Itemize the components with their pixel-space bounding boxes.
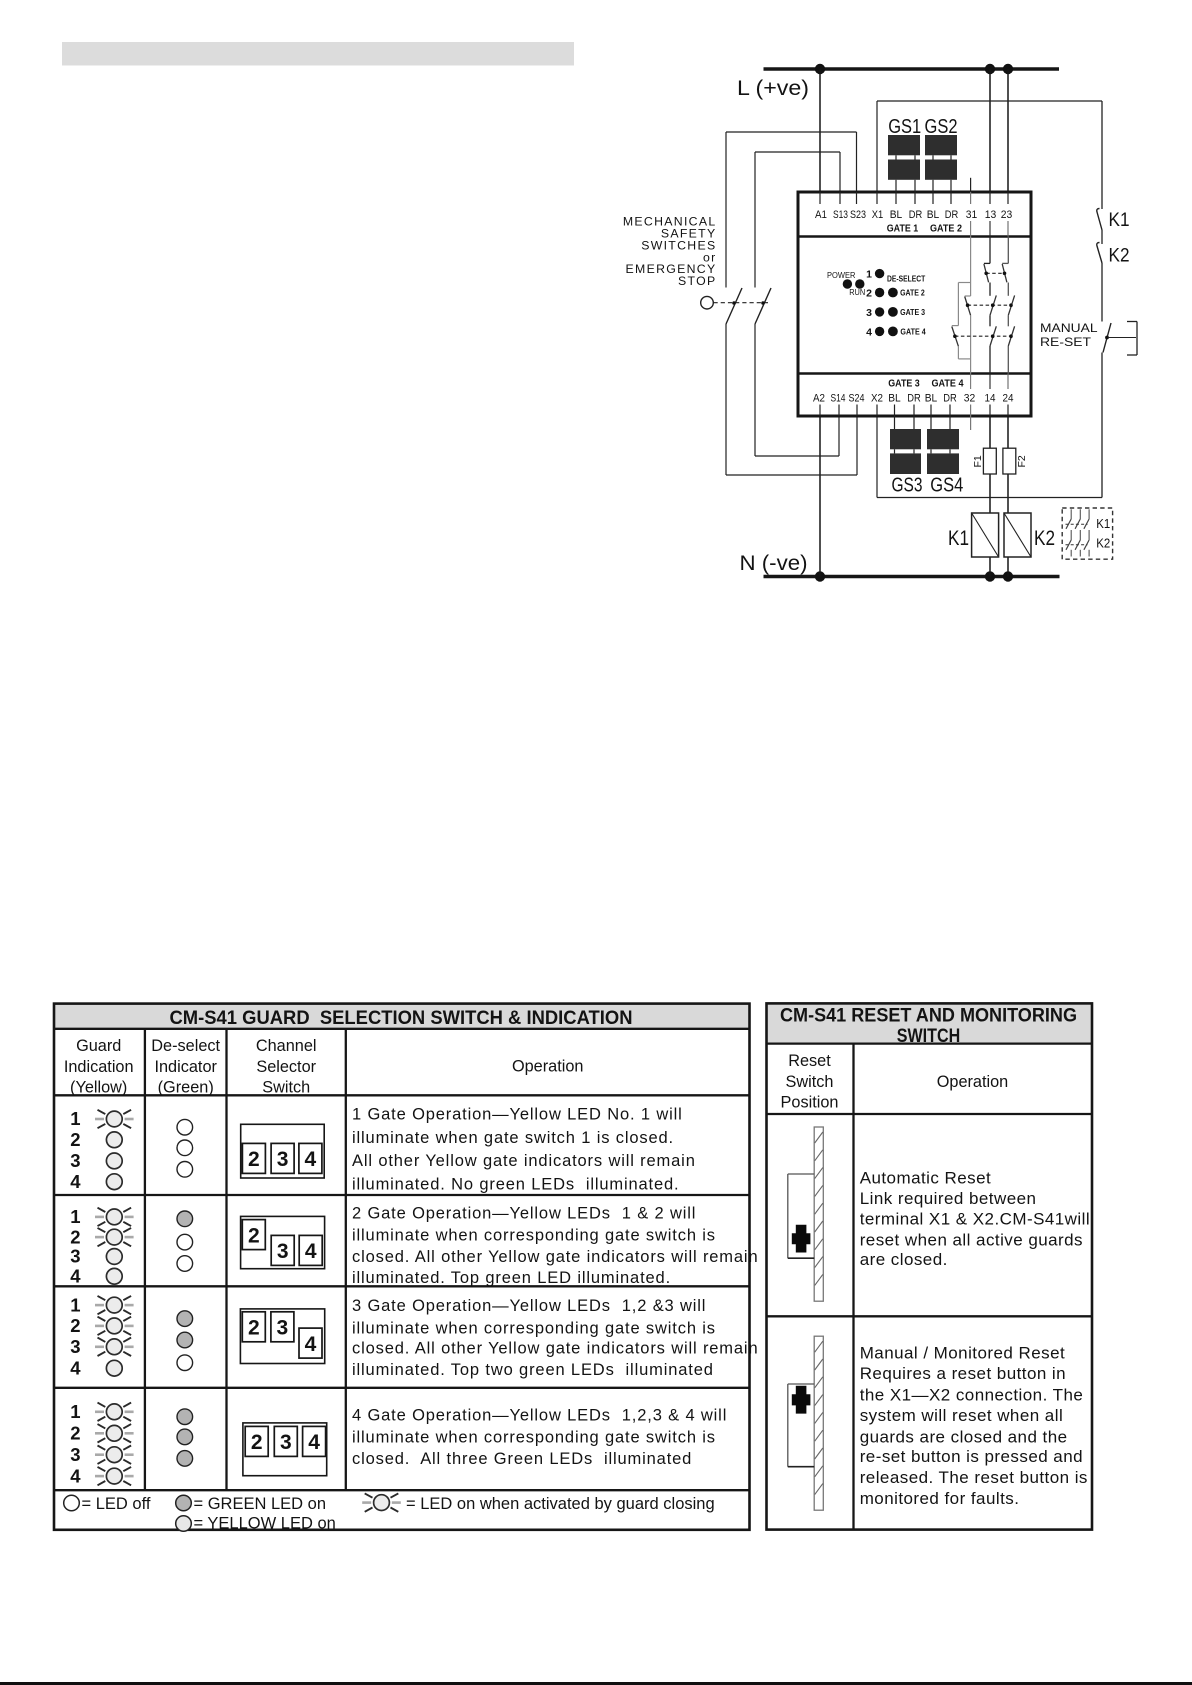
svg-text:K2: K2 — [1096, 537, 1110, 551]
svg-text:L (+ve): L (+ve) — [737, 77, 809, 100]
svg-text:A2: A2 — [813, 393, 825, 405]
svg-text:STOP: STOP — [678, 274, 716, 288]
svg-text:F2: F2 — [1016, 455, 1028, 467]
svg-text:illuminated. No green LEDs il: illuminated. No green LEDs illuminated. — [352, 1176, 679, 1194]
svg-text:S24: S24 — [849, 393, 865, 405]
svg-text:De-select: De-select — [151, 1037, 220, 1055]
svg-text:4: 4 — [305, 1333, 317, 1356]
svg-text:the X1—X2 connection. The: the X1—X2 connection. The — [860, 1385, 1084, 1404]
svg-text:3: 3 — [70, 1444, 80, 1465]
svg-text:BL: BL — [890, 209, 903, 221]
svg-text:RUN: RUN — [849, 287, 865, 297]
svg-text:2 Gate Operation—Yellow LEDs: 2 Gate Operation—Yellow LEDs 1 & 2 will — [352, 1205, 696, 1223]
svg-text:3: 3 — [277, 1317, 289, 1340]
svg-text:1 Gate Operation—Yellow LED No: 1 Gate Operation—Yellow LED No. 1 will — [352, 1105, 683, 1123]
svg-text:illuminate when corresponding: illuminate when corresponding gate switc… — [352, 1320, 716, 1338]
svg-text:DR: DR — [945, 209, 959, 221]
svg-text:X2: X2 — [871, 393, 883, 405]
svg-text:Guard: Guard — [76, 1037, 121, 1055]
svg-text:23: 23 — [1001, 209, 1013, 221]
svg-text:DR: DR — [907, 393, 921, 405]
svg-text:3: 3 — [277, 1148, 289, 1171]
svg-text:2: 2 — [70, 1423, 80, 1444]
svg-text:Operation: Operation — [512, 1058, 584, 1076]
svg-text:A1: A1 — [815, 209, 827, 221]
svg-text:Reset: Reset — [788, 1052, 831, 1070]
svg-text:illuminated. Top green LED ill: illuminated. Top green LED illuminated. — [352, 1269, 671, 1287]
svg-text:All other Yellow gate indicato: All other Yellow gate indicators will re… — [352, 1152, 696, 1170]
svg-text:Indicator: Indicator — [154, 1058, 217, 1076]
svg-text:CM-S41 RESET AND MONITORING: CM-S41 RESET AND MONITORING — [780, 1005, 1077, 1026]
svg-text:13: 13 — [985, 209, 997, 221]
svg-text:Link required between: Link required between — [860, 1189, 1037, 1208]
svg-text:illuminated. Top two green LED: illuminated. Top two green LEDs illumina… — [352, 1361, 714, 1379]
svg-text:DR: DR — [909, 209, 923, 221]
svg-text:K1: K1 — [1096, 517, 1110, 531]
svg-text:terminal X1 & X2.CM-S41will: terminal X1 & X2.CM-S41will — [860, 1209, 1090, 1228]
svg-text:K2: K2 — [1034, 527, 1055, 550]
svg-text:GATE 4: GATE 4 — [932, 379, 964, 390]
svg-text:Automatic Reset: Automatic Reset — [860, 1169, 991, 1188]
svg-text:1: 1 — [70, 1401, 80, 1422]
svg-text:2: 2 — [251, 1431, 263, 1454]
svg-text:BL: BL — [888, 393, 901, 405]
svg-text:1: 1 — [866, 269, 872, 281]
svg-text:Manual / Monitored Reset: Manual / Monitored Reset — [860, 1343, 1065, 1362]
svg-text:released. The reset button is: released. The reset button is — [860, 1468, 1088, 1487]
svg-text:4 Gate Operation—Yellow LEDs: 4 Gate Operation—Yellow LEDs 1,2,3 & 4 w… — [352, 1407, 727, 1425]
svg-text:GATE 1: GATE 1 — [887, 224, 919, 235]
svg-text:GATE 3: GATE 3 — [888, 379, 920, 390]
svg-text:GATE 2: GATE 2 — [900, 288, 925, 297]
svg-text:closed. All three Green LEDs: closed. All three Green LEDs illuminated — [352, 1450, 692, 1468]
svg-text:CM-S41 GUARD SELECTION SWITCH: CM-S41 GUARD SELECTION SWITCH & INDICATI… — [170, 1008, 633, 1029]
svg-text:MANUAL: MANUAL — [1040, 321, 1098, 335]
svg-text:4: 4 — [70, 1266, 81, 1287]
svg-text:X1: X1 — [872, 209, 884, 221]
svg-text:illuminate when corresponding: illuminate when corresponding gate switc… — [352, 1226, 716, 1244]
svg-text:K1: K1 — [948, 527, 969, 550]
svg-text:DR: DR — [943, 393, 957, 405]
svg-text:2: 2 — [70, 1226, 80, 1247]
svg-text:3: 3 — [70, 1150, 80, 1171]
svg-text:2: 2 — [248, 1224, 260, 1247]
svg-text:(Green): (Green) — [158, 1079, 214, 1097]
svg-text:4: 4 — [70, 1465, 81, 1486]
svg-text:1: 1 — [70, 1206, 80, 1227]
svg-text:GS2: GS2 — [925, 116, 958, 138]
svg-text:RE-SET: RE-SET — [1040, 335, 1092, 349]
svg-text:GATE 3: GATE 3 — [900, 308, 926, 317]
svg-text:3: 3 — [70, 1246, 80, 1267]
svg-text:Switch: Switch — [786, 1073, 834, 1091]
svg-text:(Yellow): (Yellow) — [70, 1079, 127, 1097]
svg-text:= YELLOW LED on: = YELLOW LED on — [194, 1515, 336, 1533]
svg-text:Requires a reset button in: Requires a reset button in — [860, 1364, 1066, 1383]
svg-text:3 Gate Operation—Yellow LEDs: 3 Gate Operation—Yellow LEDs 1,2 &3 will — [352, 1297, 706, 1315]
svg-text:2: 2 — [248, 1148, 260, 1171]
svg-text:GATE 2: GATE 2 — [930, 224, 962, 235]
svg-text:31: 31 — [966, 209, 978, 221]
svg-text:3: 3 — [277, 1240, 289, 1263]
svg-text:illuminate when corresponding: illuminate when corresponding gate switc… — [352, 1429, 716, 1447]
svg-text:14: 14 — [985, 393, 996, 405]
svg-text:S13: S13 — [833, 209, 848, 221]
svg-text:2: 2 — [248, 1317, 260, 1340]
svg-text:reset when all active guards: reset when all active guards — [860, 1230, 1083, 1249]
svg-text:re-set button is pressed and: re-set button is pressed and — [860, 1447, 1083, 1466]
svg-text:illuminate when gate switch 1: illuminate when gate switch 1 is closed. — [352, 1129, 674, 1147]
svg-text:K1: K1 — [1109, 210, 1130, 231]
svg-text:Indication: Indication — [64, 1058, 134, 1076]
svg-text:1: 1 — [70, 1294, 80, 1315]
svg-text:N (-ve): N (-ve) — [740, 552, 808, 575]
svg-text:GATE 4: GATE 4 — [900, 327, 926, 336]
svg-text:3: 3 — [280, 1431, 292, 1454]
svg-text:closed. All other Yellow gate: closed. All other Yellow gate indicators… — [352, 1248, 758, 1266]
svg-text:K2: K2 — [1109, 246, 1130, 267]
svg-text:system will reset when all: system will reset when all — [860, 1406, 1063, 1425]
svg-text:POWER: POWER — [827, 270, 855, 280]
svg-text:3: 3 — [70, 1336, 80, 1357]
svg-text:= LED off: = LED off — [82, 1495, 151, 1513]
svg-text:3: 3 — [866, 307, 872, 319]
svg-text:24: 24 — [1003, 393, 1014, 405]
svg-text:4: 4 — [70, 1357, 81, 1378]
svg-text:2: 2 — [70, 1315, 80, 1336]
svg-text:4: 4 — [305, 1148, 317, 1171]
svg-text:4: 4 — [866, 326, 872, 338]
svg-text:Channel: Channel — [256, 1037, 317, 1055]
svg-text:closed. All other Yellow gate: closed. All other Yellow gate indicators… — [352, 1340, 758, 1358]
svg-text:2: 2 — [866, 287, 872, 299]
svg-text:F1: F1 — [972, 455, 984, 467]
svg-text:Switch: Switch — [262, 1079, 310, 1097]
svg-text:4: 4 — [308, 1431, 320, 1454]
svg-text:Operation: Operation — [937, 1073, 1009, 1091]
svg-text:Position: Position — [781, 1093, 839, 1111]
svg-text:4: 4 — [305, 1240, 317, 1263]
svg-text:BL: BL — [927, 209, 940, 221]
svg-text:monitored for faults.: monitored for faults. — [860, 1489, 1020, 1508]
svg-text:S14: S14 — [831, 393, 846, 405]
svg-text:SWITCH: SWITCH — [897, 1026, 961, 1047]
svg-text:= GREEN LED on: = GREEN LED on — [194, 1495, 327, 1513]
svg-text:BL: BL — [925, 393, 938, 405]
svg-text:= LED on when activated by gua: = LED on when activated by guard closing — [406, 1495, 715, 1513]
svg-text:1: 1 — [70, 1108, 80, 1129]
svg-text:are closed.: are closed. — [860, 1250, 948, 1269]
svg-text:S23: S23 — [850, 209, 866, 221]
svg-text:GS3: GS3 — [892, 475, 923, 497]
svg-text:guards are closed and the: guards are closed and the — [860, 1428, 1068, 1447]
svg-text:GS1: GS1 — [888, 116, 921, 138]
svg-text:32: 32 — [964, 393, 976, 405]
svg-text:4: 4 — [70, 1171, 81, 1192]
svg-text:Selector: Selector — [256, 1058, 316, 1076]
svg-text:DE-SELECT: DE-SELECT — [887, 275, 925, 284]
svg-text:2: 2 — [70, 1129, 80, 1150]
svg-text:GS4: GS4 — [930, 475, 963, 497]
